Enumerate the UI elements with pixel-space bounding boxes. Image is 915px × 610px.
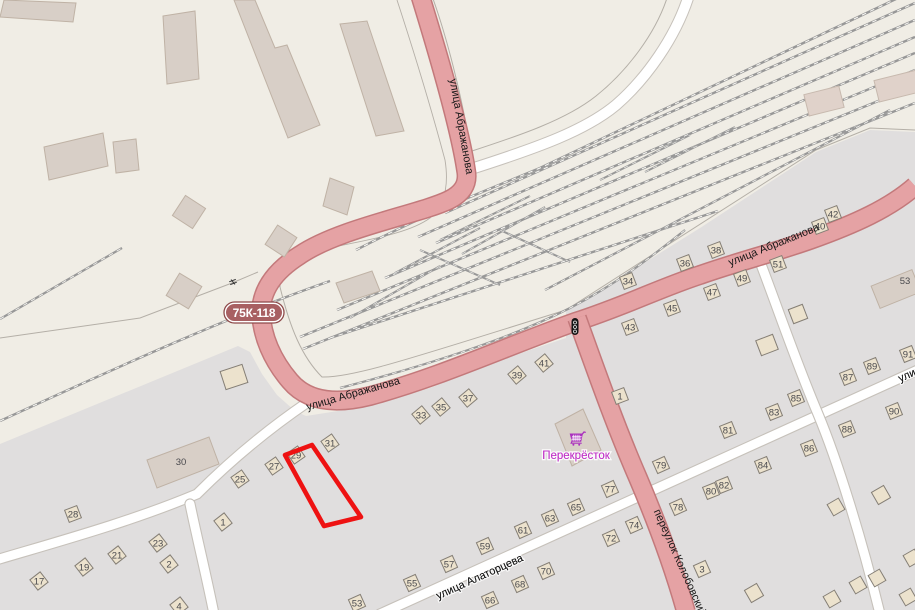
svg-text:35: 35 [436, 402, 447, 413]
svg-text:1: 1 [617, 391, 622, 402]
svg-text:83: 83 [769, 407, 780, 418]
svg-text:41: 41 [539, 358, 550, 369]
svg-text:53: 53 [352, 598, 363, 609]
svg-text:72: 72 [606, 533, 617, 544]
svg-text:86: 86 [804, 443, 815, 454]
svg-text:25: 25 [235, 474, 246, 485]
svg-text:61: 61 [518, 525, 529, 536]
svg-text:49: 49 [737, 273, 748, 284]
svg-text:91: 91 [903, 349, 914, 360]
svg-text:31: 31 [325, 438, 336, 449]
svg-text:57: 57 [444, 559, 455, 570]
svg-text:30: 30 [176, 457, 187, 468]
svg-text:51: 51 [773, 259, 784, 270]
svg-text:75К-118: 75К-118 [233, 306, 276, 320]
svg-text:42: 42 [828, 209, 839, 220]
svg-text:4: 4 [176, 601, 181, 610]
svg-text:21: 21 [112, 550, 123, 561]
svg-text:68: 68 [515, 579, 526, 590]
svg-text:19: 19 [79, 562, 90, 573]
svg-text:70: 70 [541, 566, 552, 577]
svg-text:79: 79 [656, 460, 667, 471]
svg-text:59: 59 [480, 541, 491, 552]
svg-text:33: 33 [416, 410, 427, 421]
svg-text:63: 63 [545, 513, 556, 524]
svg-text:36: 36 [680, 258, 691, 269]
svg-text:47: 47 [707, 287, 718, 298]
svg-text:78: 78 [673, 502, 684, 513]
svg-text:3: 3 [699, 564, 704, 575]
svg-text:80: 80 [706, 486, 717, 497]
svg-text:82: 82 [719, 480, 730, 491]
svg-text:Перекрёсток: Перекрёсток [542, 450, 611, 462]
svg-text:66: 66 [485, 595, 496, 606]
svg-text:65: 65 [571, 502, 582, 513]
svg-text:77: 77 [605, 484, 616, 495]
svg-text:53: 53 [900, 276, 911, 287]
svg-text:39: 39 [512, 370, 523, 381]
svg-text:45: 45 [667, 303, 678, 314]
svg-text:34: 34 [623, 276, 634, 287]
svg-text:38: 38 [711, 245, 722, 256]
svg-text:23: 23 [153, 538, 164, 549]
svg-text:84: 84 [758, 460, 769, 471]
svg-text:88: 88 [842, 424, 853, 435]
svg-text:85: 85 [791, 393, 802, 404]
svg-text:87: 87 [843, 372, 854, 383]
svg-text:89: 89 [867, 361, 878, 372]
svg-text:28: 28 [68, 509, 79, 520]
svg-text:74: 74 [629, 520, 640, 531]
svg-text:55: 55 [407, 578, 418, 589]
svg-text:27: 27 [269, 461, 280, 472]
svg-text:2: 2 [166, 559, 171, 570]
svg-text:81: 81 [723, 425, 734, 436]
svg-text:43: 43 [625, 322, 636, 333]
svg-text:90: 90 [889, 406, 900, 417]
svg-text:1: 1 [220, 517, 225, 528]
svg-text:17: 17 [34, 576, 45, 587]
svg-text:37: 37 [463, 393, 474, 404]
